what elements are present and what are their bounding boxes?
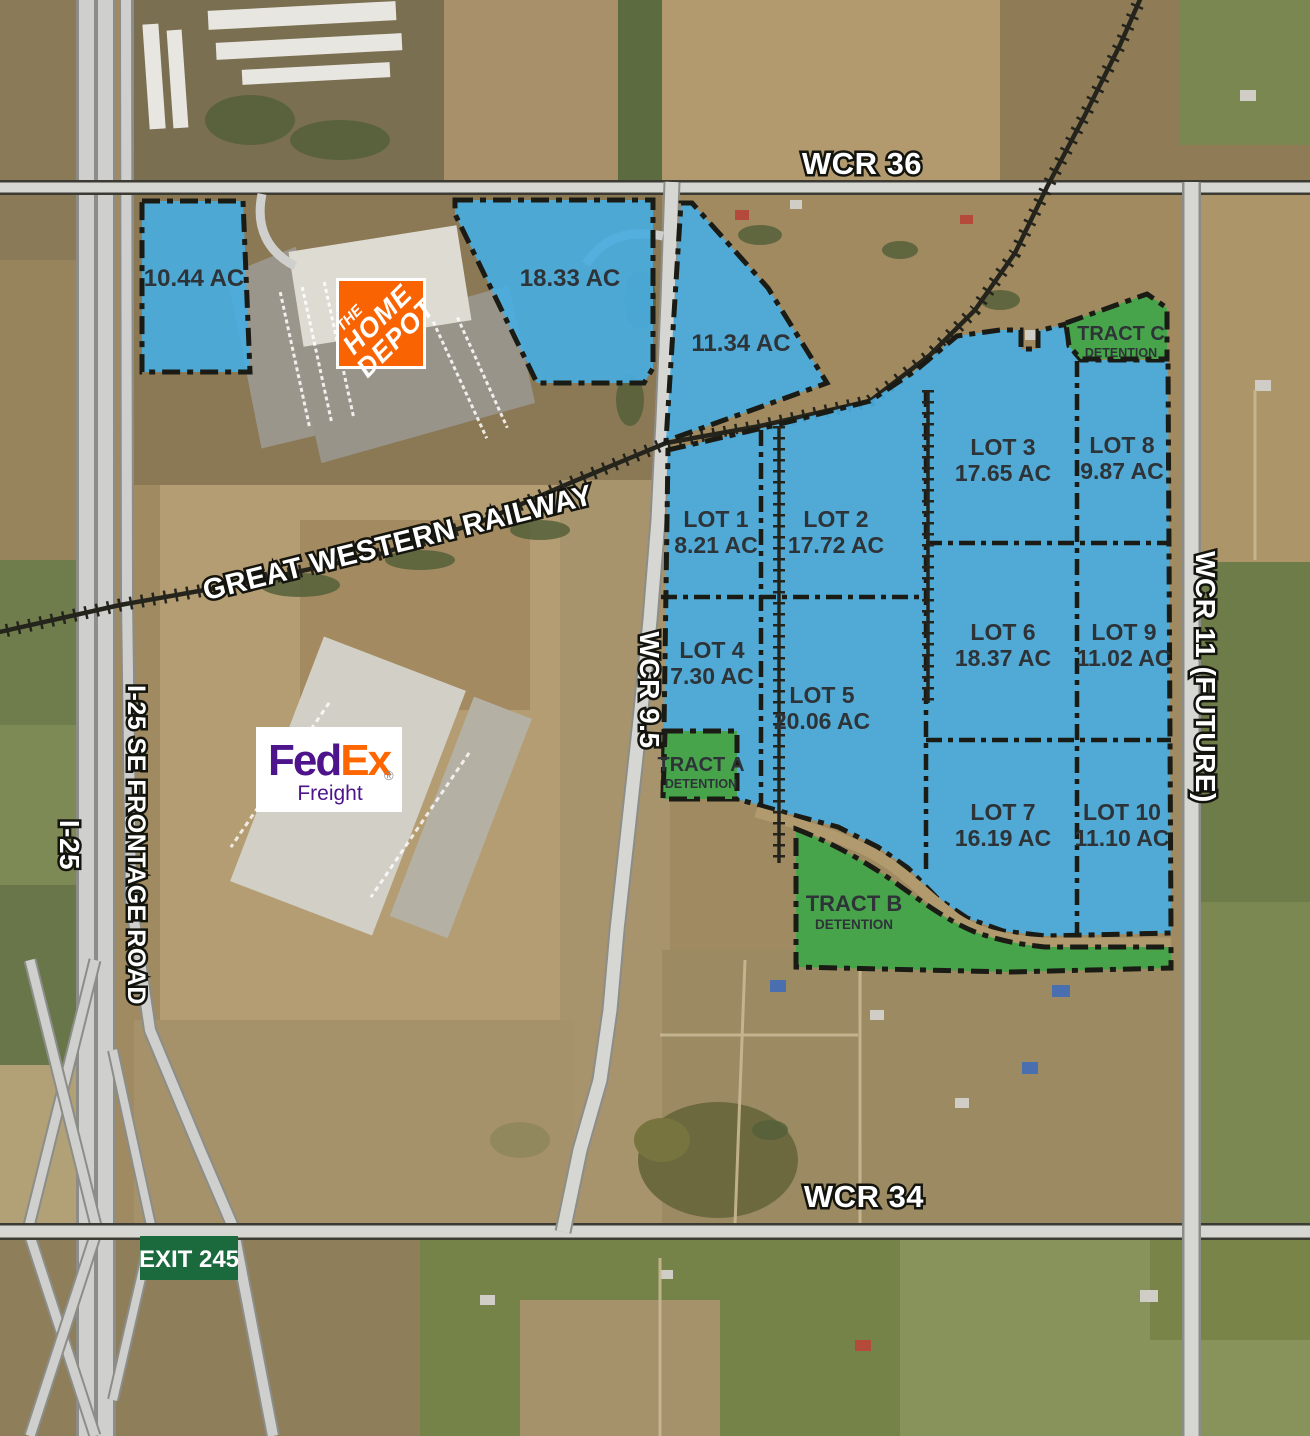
wcr11-label: WCR 11 (FUTURE) (1190, 551, 1221, 803)
parcel-label: LOT 9 (1091, 619, 1156, 645)
parcel-label: 9.87 AC (1080, 458, 1164, 484)
parcel-label: 17.72 AC (788, 532, 884, 558)
parcel-label: LOT 6 (970, 619, 1035, 645)
parcel-label: LOT 5 (789, 682, 854, 708)
parcel-label: 11.10 AC (1074, 825, 1169, 851)
fedex-fed: Fed (268, 736, 340, 785)
parcel-label: LOT 8 (1089, 432, 1154, 458)
tract-label: TRACT C (1077, 323, 1165, 345)
parcel-label: 11.34 AC (691, 330, 790, 357)
parcel-label: LOT 4 (679, 637, 744, 663)
wcr34-label: WCR 34 (804, 1179, 924, 1214)
i25-label: I-25 (54, 820, 85, 870)
exit-245-label: EXIT 245 (139, 1246, 239, 1273)
parcel-label: 8.21 AC (674, 532, 758, 558)
aerial-site-plan-map: THE HOME DEPOT FedEx ® Freight WCR 36 WC… (0, 0, 1310, 1436)
fedex-freight: Freight (297, 782, 363, 805)
parcel-label: 18.33 AC (520, 265, 621, 292)
map-canvas: THE HOME DEPOT FedEx ® Freight WCR 36 WC… (0, 0, 1310, 1436)
parcel-label: 17.65 AC (955, 460, 1051, 486)
parcel-label: LOT 10 (1083, 799, 1161, 825)
parcel-label: 10.44 AC (144, 265, 245, 292)
parcel-label: LOT 2 (803, 506, 868, 532)
parcel-label: LOT 7 (970, 799, 1035, 825)
frontage-road-label: I-25 SE FRONTAGE ROAD (122, 685, 150, 1005)
parcel-label: LOT 1 (683, 506, 748, 532)
parcel-label: 11.02 AC (1076, 645, 1171, 671)
exit-245-sign: EXIT 245 (139, 1236, 239, 1280)
parcel-label: 20.06 AC (774, 708, 870, 734)
wcr36-road (0, 180, 1310, 195)
parcel-label: LOT 3 (970, 434, 1035, 460)
tract-label: DETENTION (665, 777, 737, 791)
wcr36-label: WCR 36 (802, 146, 922, 181)
parcel-label: 16.19 AC (955, 825, 1051, 851)
tract-label: TRACT B (806, 891, 903, 916)
tract-label: TRACT A (657, 754, 744, 776)
parcel-label: 7.30 AC (670, 663, 754, 689)
wcr95-label: WCR 9.5 (634, 631, 665, 748)
wcr11-road (1182, 182, 1201, 1436)
home-depot-logo: THE HOME DEPOT (322, 263, 442, 383)
parcel-label: 18.37 AC (955, 645, 1051, 671)
svg-text:FedEx: FedEx (268, 736, 393, 785)
fedex-logo: FedEx ® Freight (256, 727, 402, 812)
tract-label: DETENTION (815, 917, 893, 932)
fedex-reg: ® (384, 768, 394, 783)
tract-label: DETENTION (1085, 346, 1157, 360)
